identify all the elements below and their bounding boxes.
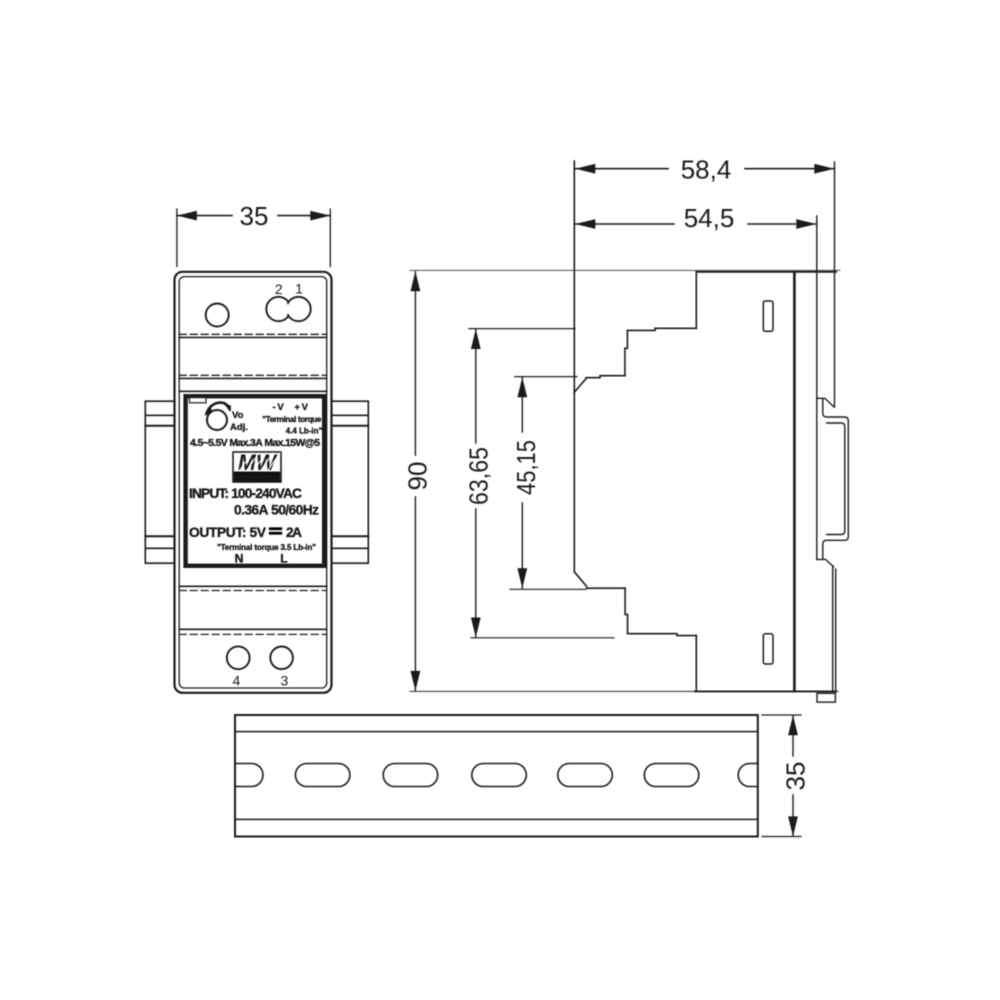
svg-text:OUTPUT: 5V: OUTPUT: 5V	[189, 525, 267, 540]
svg-text:N: N	[235, 552, 244, 566]
svg-text:"Terminal torque 3.5 Lb-in": "Terminal torque 3.5 Lb-in"	[217, 543, 316, 552]
svg-text:58,4: 58,4	[681, 154, 732, 184]
svg-text:"Terminal torque: "Terminal torque	[262, 415, 322, 424]
svg-text:0.36A 50/60Hz: 0.36A 50/60Hz	[234, 503, 319, 518]
svg-text:2: 2	[275, 281, 283, 297]
svg-text:3: 3	[281, 673, 289, 689]
svg-text:45,15: 45,15	[511, 440, 541, 495]
svg-text:35: 35	[781, 762, 811, 791]
svg-text:L: L	[280, 552, 288, 566]
svg-text:4.4 Lb-in": 4.4 Lb-in"	[286, 427, 323, 436]
svg-text:4.5~5.5V Max.3A Max.15W@5: 4.5~5.5V Max.3A Max.15W@5	[190, 438, 320, 449]
svg-text:Vo: Vo	[232, 410, 244, 421]
svg-text:54,5: 54,5	[684, 203, 735, 233]
svg-text:1: 1	[295, 281, 303, 297]
svg-text:90: 90	[403, 462, 433, 491]
svg-text:INPUT: 100-240VAC: INPUT: 100-240VAC	[189, 486, 302, 501]
svg-text:2A: 2A	[286, 525, 302, 540]
svg-text:63,65: 63,65	[464, 447, 494, 505]
svg-text:Adj.: Adj.	[230, 422, 248, 433]
svg-text:35: 35	[240, 201, 269, 231]
svg-text:MEAN WELL: MEAN WELL	[237, 475, 278, 482]
svg-text:4: 4	[233, 673, 241, 689]
svg-text:-V +V: -V +V	[273, 402, 309, 413]
